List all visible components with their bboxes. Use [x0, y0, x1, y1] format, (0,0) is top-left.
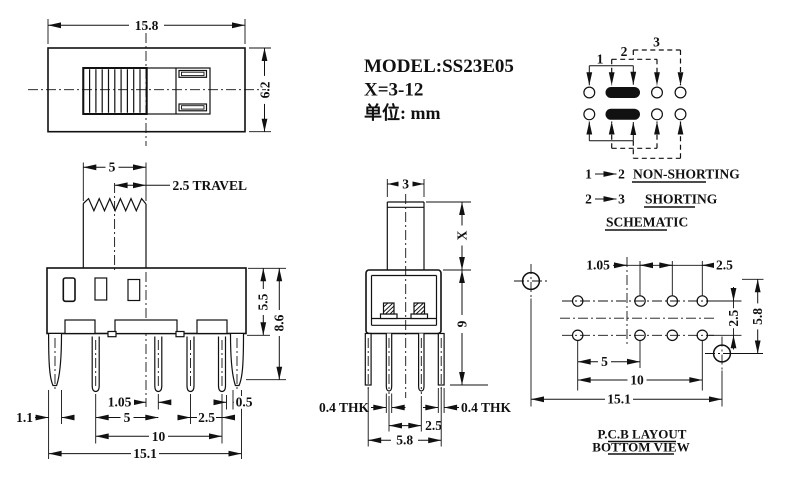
unit-label: 单位: mm	[364, 102, 440, 123]
drawing-canvas: 15.8 6.2 MODEL:SS23E05 X=3-12 单位: mm	[0, 0, 800, 480]
center-offset-dim: 1.05	[108, 395, 132, 410]
pcb-caption-line2: BOTTOM VIEW	[592, 440, 689, 455]
pcb-pitch-dim: 5	[601, 354, 608, 369]
model-number: MODEL:SS23E05	[364, 56, 514, 77]
contact-section	[384, 303, 395, 314]
x-range: X=3-12	[364, 80, 423, 101]
pcb-center-offset-dim: 1.05	[586, 258, 610, 273]
knob-width-dim: 5	[109, 160, 116, 175]
total-height-dim: 8.6	[272, 314, 287, 331]
schematic-caption: SCHEMATIC	[606, 215, 688, 230]
top-view: 15.8 6.2	[28, 18, 272, 146]
terminal-1-label: 1	[597, 52, 604, 67]
terminal-2-label: 2	[621, 44, 628, 59]
title-block: MODEL:SS23E05 X=3-12 单位: mm	[364, 56, 514, 123]
pcb-layout-view: 1.05 2.5 2.5 5.8 5 10 15.1 P.C.B LAYOUT	[514, 257, 765, 455]
pcb-pitch-small-dim: 2.5	[716, 258, 733, 273]
side-overall-width-dim: 5.8	[396, 433, 413, 448]
top-view-width-dim: 15.8	[135, 18, 159, 33]
upper-height-dim: 5.5	[256, 293, 271, 310]
pcb-hole-span-dim: 5.8	[750, 308, 765, 325]
terminal-3-label: 3	[653, 35, 660, 50]
stem-width-dim: 3	[402, 176, 409, 191]
pcb-overall-dim: 15.1	[607, 392, 631, 407]
side-view: 3 X	[319, 176, 512, 447]
slider-contact	[606, 109, 641, 120]
note1-from: 1	[585, 167, 592, 182]
pin-pitch-small-dim: 2.5	[198, 410, 215, 425]
body-height-dim: 9	[454, 320, 469, 327]
note1-to: 2	[618, 167, 625, 182]
pcb-span-dim: 10	[630, 372, 644, 387]
leg-width-dim: 1.1	[16, 410, 33, 425]
contact-section	[414, 303, 425, 314]
slider-contact	[606, 87, 641, 98]
note2-from: 2	[585, 192, 592, 207]
pcb-row-gap-dim: 2.5	[726, 310, 741, 327]
thk-left-dim: 0.4 THK	[319, 400, 370, 415]
note1-label: NON-SHORTING	[633, 167, 740, 182]
note2-label: SHORTING	[645, 192, 718, 207]
front-view: 5 2.5 TRAVEL	[16, 160, 287, 461]
schematic-view: 1 2 3 1 2 NON-SHORTING 2 3 SHORTING SCHE…	[584, 35, 740, 231]
pin-gap-dim: 2.5	[425, 418, 442, 433]
side-body-outline	[366, 270, 441, 334]
thk-right-dim: 0.4 THK	[461, 400, 512, 415]
pin-span-dim: 10	[152, 429, 166, 444]
knob-ridges	[90, 69, 140, 113]
note2-to: 3	[618, 192, 625, 207]
engineering-drawing-page: 15.8 6.2 MODEL:SS23E05 X=3-12 单位: mm	[0, 0, 800, 480]
pin-pitch-dim: 5	[124, 410, 131, 425]
travel-dim: 2.5 TRAVEL	[173, 178, 248, 193]
edge-gap-dim: 0.5	[236, 395, 253, 410]
stem-height-dim: X	[454, 230, 469, 240]
overall-width-dim: 15.1	[133, 446, 157, 461]
